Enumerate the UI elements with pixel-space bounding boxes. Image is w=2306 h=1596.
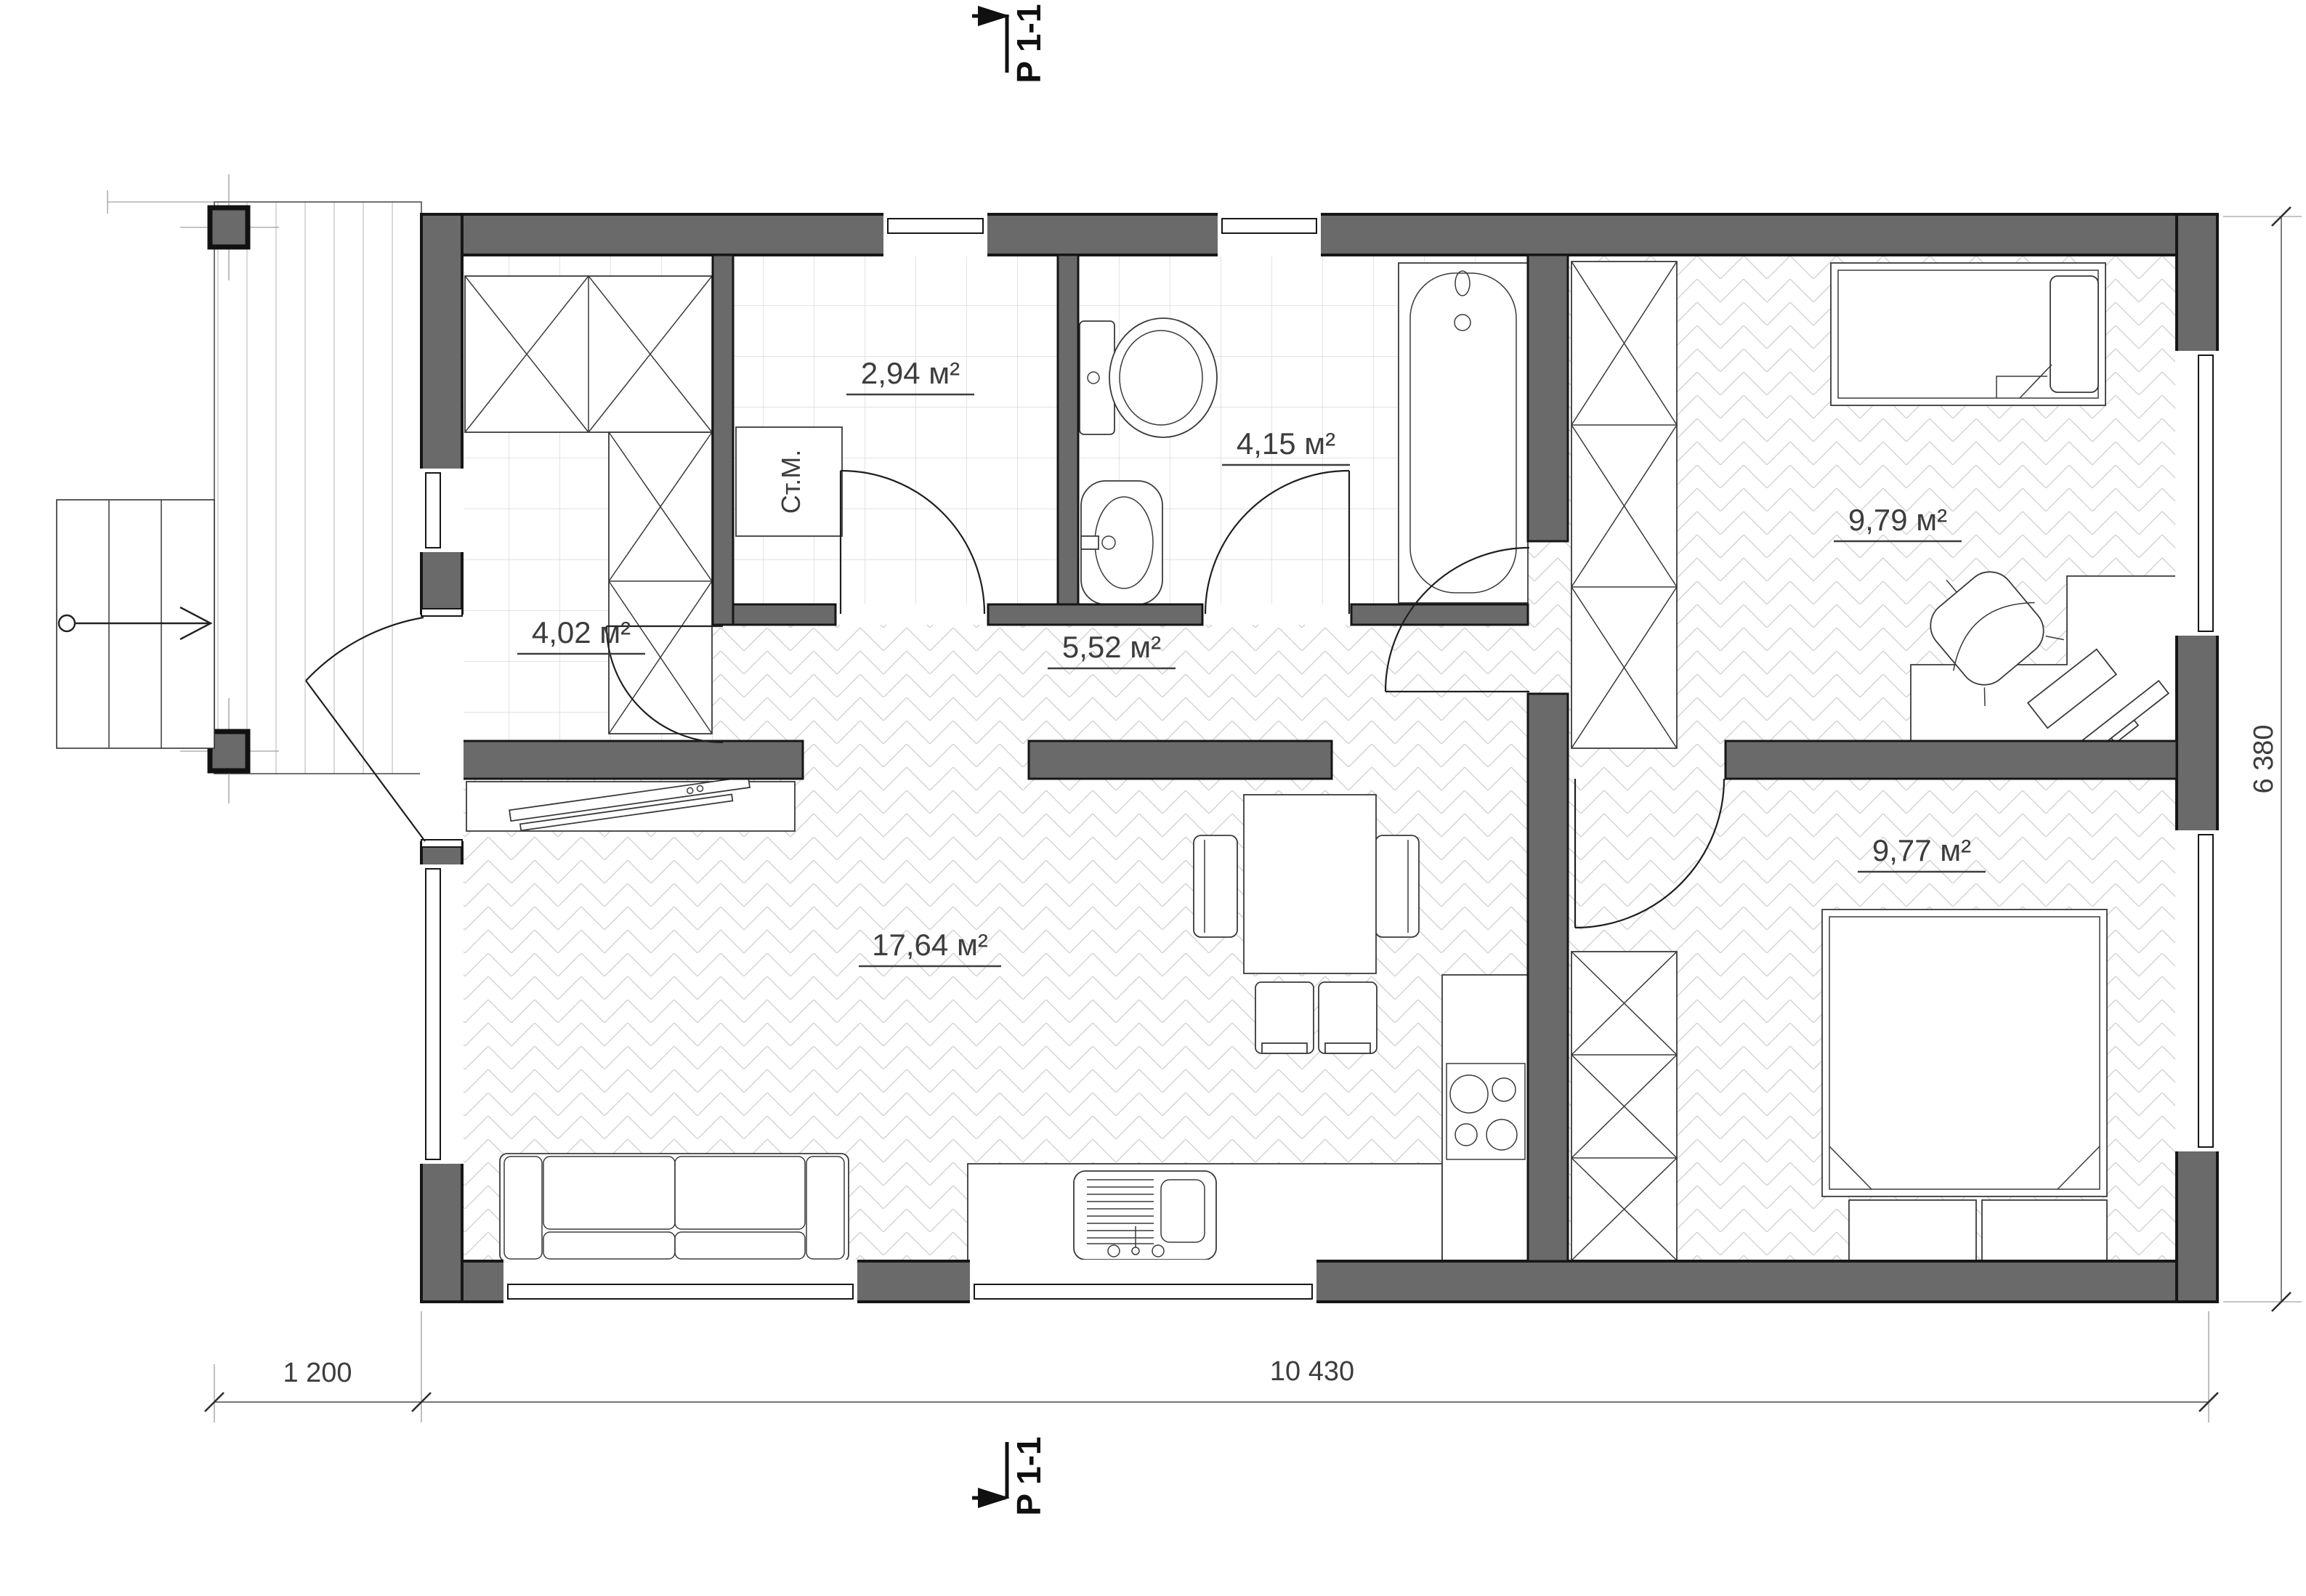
toilet: [1080, 318, 1217, 437]
dining-table: [1244, 795, 1376, 973]
bathroom-sink: [1081, 481, 1162, 604]
wall-middle-bottom: [1528, 694, 1568, 1261]
entrance-opening: [420, 609, 464, 847]
room-label-laundry: 2,94 м²: [861, 356, 960, 390]
window-bathroom: [1218, 213, 1321, 256]
section-marker-bottom: P 1-1: [972, 1436, 1048, 1515]
section-label-bottom: P 1-1: [1010, 1436, 1048, 1515]
bathtub: [1399, 263, 1528, 603]
dim-porch-width: 1 200: [283, 1358, 352, 1388]
wall-hall-living-center: [1029, 741, 1332, 779]
bed-bench-1: [1849, 1200, 1976, 1261]
section-arrow-bottom: [978, 1488, 1010, 1508]
bed-single: [1831, 263, 2105, 405]
window-kitchen: [970, 1260, 1316, 1303]
bedroom-top-wardrobe: [1571, 262, 1677, 748]
sofa: [500, 1154, 849, 1262]
kitchen-sink: [1074, 1171, 1216, 1260]
washing-machine-label: Ст.М.: [776, 450, 806, 514]
wall-middle-top: [1528, 255, 1568, 541]
dim-house-depth: 6 380: [2249, 724, 2279, 793]
room-label-bedroom-bottom: 9,77 м²: [1872, 833, 1971, 867]
dining-chair-left: [1194, 835, 1237, 937]
wall-laundry-bathroom: [1058, 255, 1078, 604]
porch-deck: [214, 202, 421, 774]
tv-console: [466, 777, 795, 832]
stairs: [57, 500, 214, 748]
room-label-bedroom-top: 9,79 м²: [1848, 503, 1947, 537]
washing-machine: Ст.М.: [736, 427, 842, 536]
wall-entry-living: [462, 741, 803, 779]
bed-bench-2: [1982, 1200, 2107, 1261]
bedroom-bottom-wardrobe: [1571, 952, 1677, 1260]
kitchen-counter-right: [1442, 975, 1528, 1261]
dimension-right: 6 380: [2223, 207, 2302, 1311]
floor-plan-drawing: Ст.М.: [0, 0, 2306, 1596]
room-label-bathroom: 4,15 м²: [1237, 426, 1335, 461]
wall-bath-hall: [1351, 604, 1528, 625]
section-label-top: P 1-1: [1010, 4, 1048, 83]
wall-laundry-hall-2: [988, 604, 1202, 625]
floor-plan-sheet: Ст.М.: [0, 0, 2306, 1596]
porch: [57, 174, 421, 803]
window-living-bottom: [503, 1260, 857, 1303]
floor-door-gap-bedroom-top: [1528, 541, 1568, 694]
window-bedroom-top: [2175, 351, 2219, 636]
room-label-hall: 5,52 м²: [1062, 630, 1161, 664]
section-marker-top: P 1-1: [972, 4, 1048, 83]
window-entry: [420, 469, 464, 552]
section-arrow-top: [978, 6, 1010, 26]
floor-passage-left: [803, 741, 1029, 779]
dim-house-width: 10 430: [1270, 1356, 1354, 1387]
floor-passage-right: [1332, 741, 1528, 779]
window-laundry: [883, 213, 987, 256]
room-label-living: 17,64 м²: [872, 928, 988, 962]
dimension-bottom: 1 200 10 430: [205, 1311, 2218, 1422]
room-label-entry: 4,02 м²: [532, 615, 631, 649]
wall-entry-laundry: [713, 255, 733, 625]
window-bedroom-bottom: [2175, 830, 2219, 1151]
wall-bedroom-separator: [1726, 741, 2177, 779]
bed-double: [1822, 910, 2107, 1261]
dining-chair-right: [1375, 835, 1419, 937]
wall-laundry-hall-1: [733, 604, 836, 625]
window-living-left: [420, 864, 464, 1164]
